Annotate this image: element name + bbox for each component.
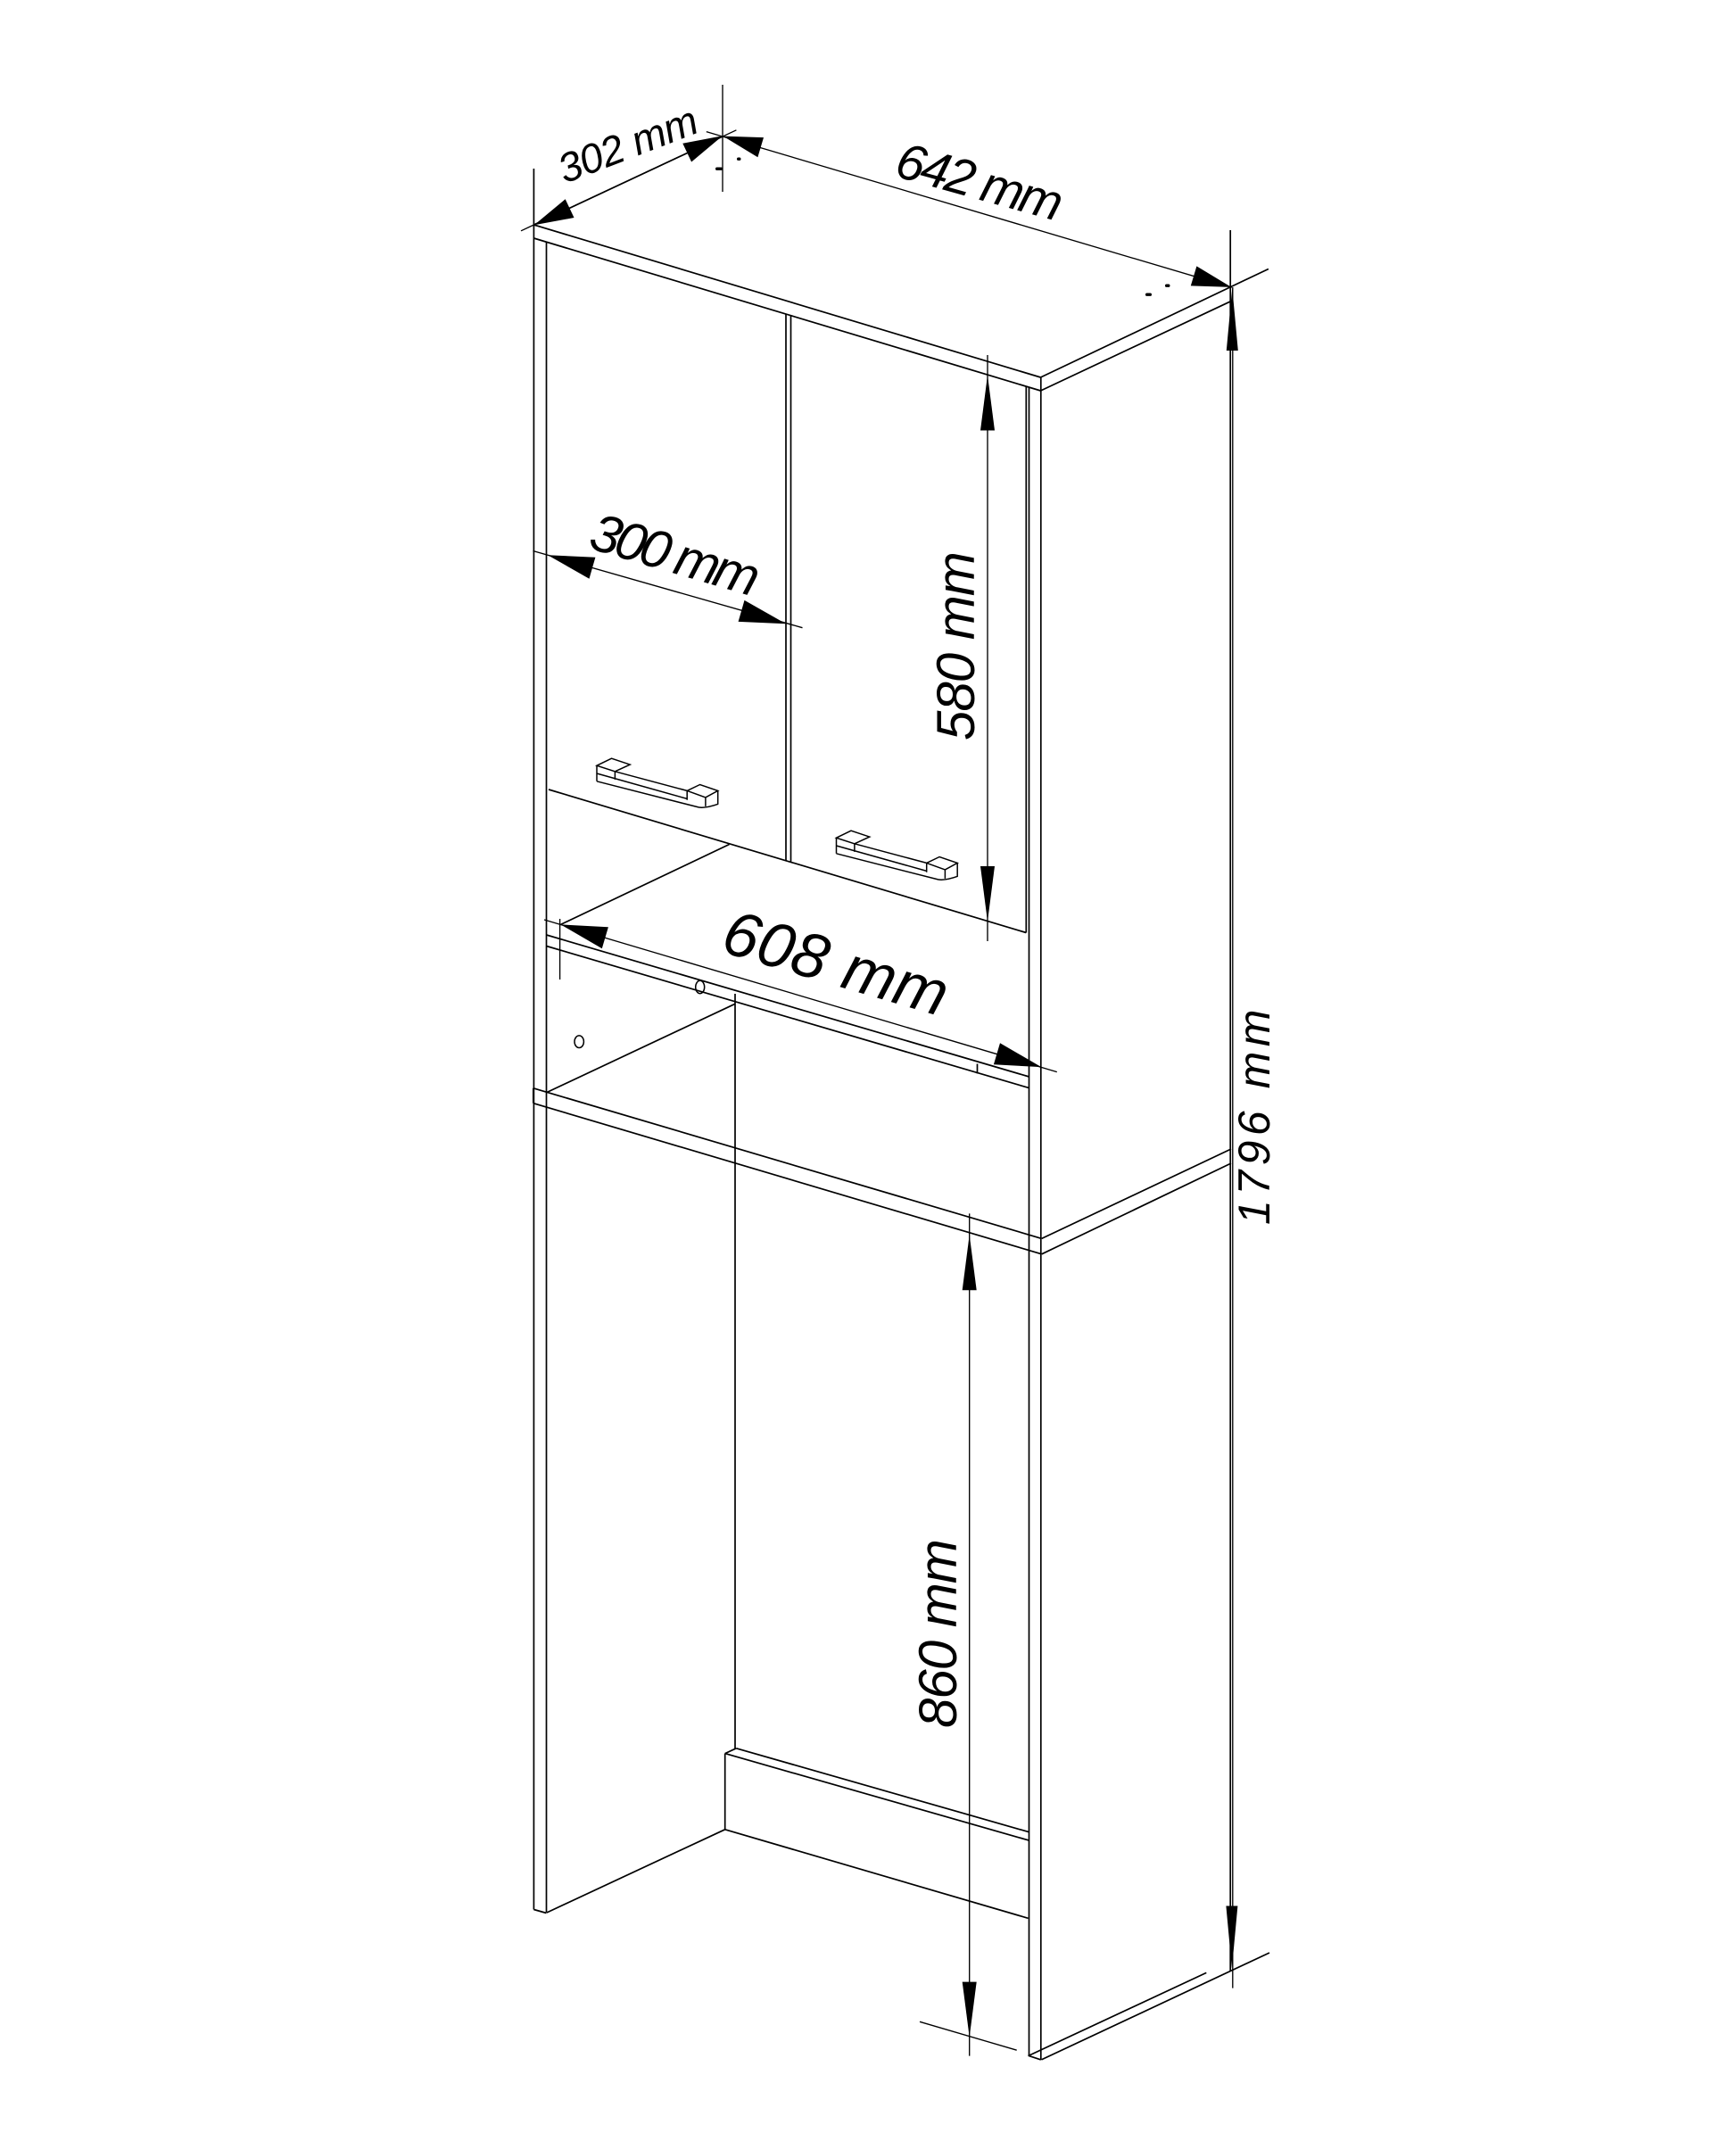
svg-text:580 mm: 580 mm	[926, 552, 986, 740]
svg-text:860 mm: 860 mm	[908, 1540, 968, 1728]
svg-text:1796 mm: 1796 mm	[1229, 1004, 1279, 1225]
